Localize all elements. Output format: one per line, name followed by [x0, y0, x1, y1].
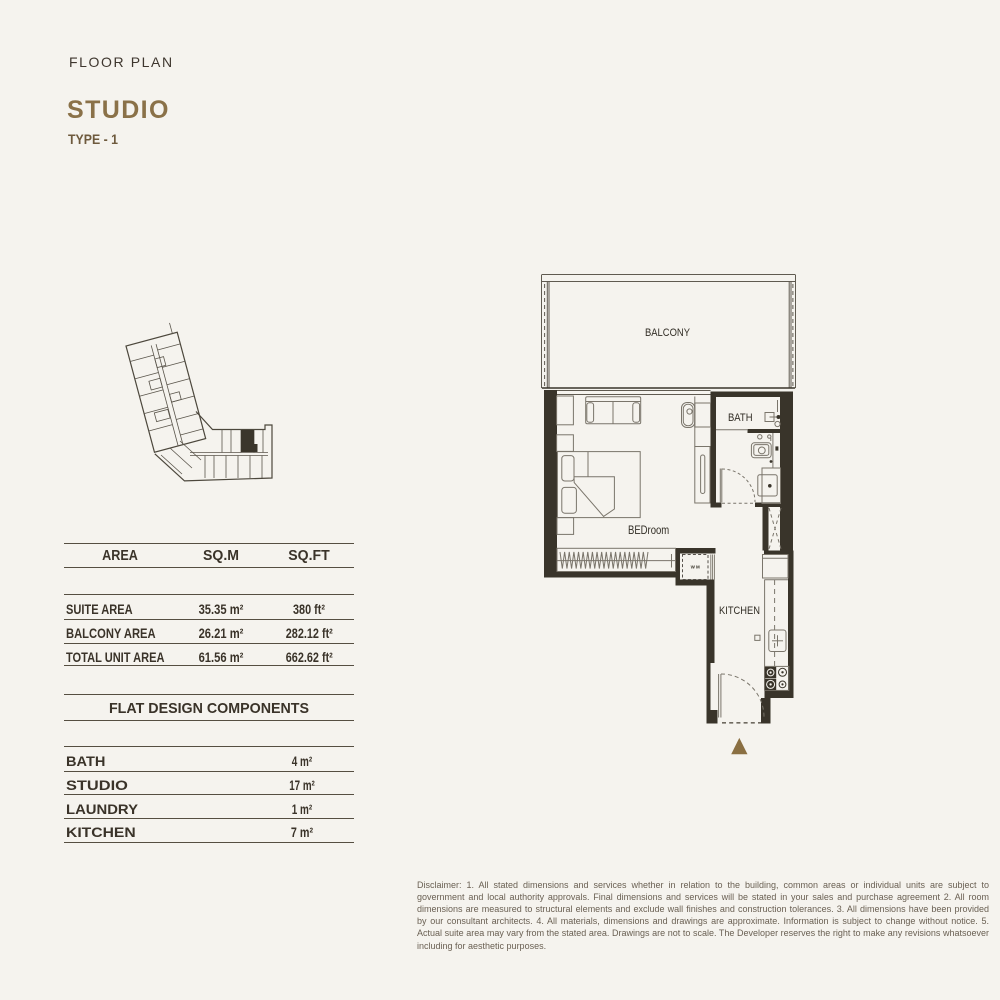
svg-text:W M: W M [691, 565, 700, 570]
